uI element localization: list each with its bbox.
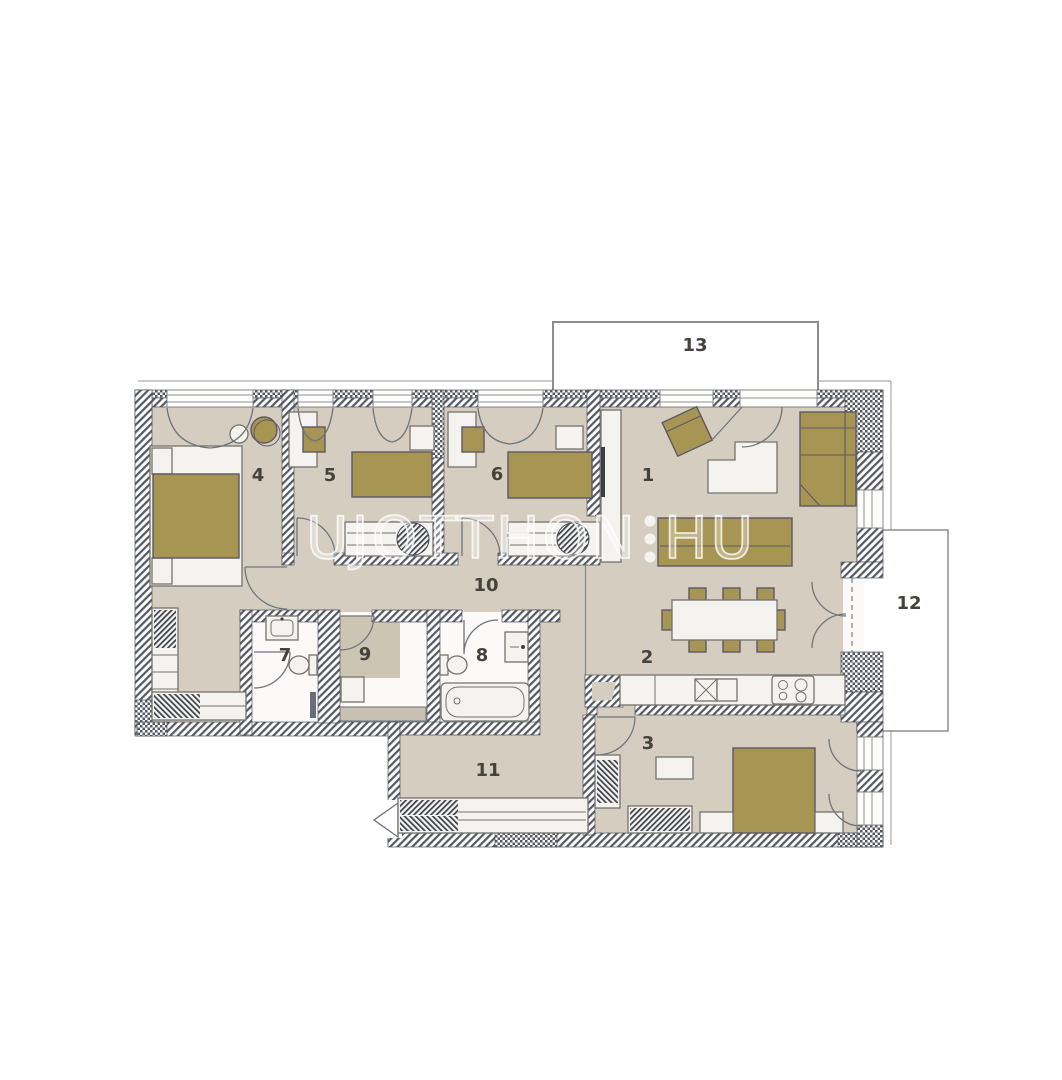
chair bbox=[462, 427, 484, 452]
label-room-4: 4 bbox=[252, 465, 265, 486]
sectional-sofa bbox=[800, 412, 856, 506]
tall-cabinet-inner bbox=[592, 682, 616, 701]
wc-icon bbox=[289, 655, 317, 675]
pillow bbox=[152, 558, 172, 584]
wardrobe-tall bbox=[595, 755, 620, 808]
watermark: UJOTTHON HU bbox=[306, 504, 756, 572]
wardrobe-long bbox=[398, 798, 588, 833]
kitchen-counter bbox=[585, 675, 845, 707]
balcony-13 bbox=[553, 322, 818, 391]
label-room-5: 5 bbox=[324, 465, 337, 486]
room-11-hall bbox=[398, 798, 588, 833]
watermark-text-right: HU bbox=[664, 504, 756, 572]
sink-icon bbox=[505, 632, 528, 662]
nightstand bbox=[815, 812, 843, 833]
window-room5-b bbox=[373, 390, 412, 407]
label-room-6: 6 bbox=[491, 464, 504, 485]
label-room-11: 11 bbox=[475, 760, 500, 781]
label-room-10: 10 bbox=[473, 575, 498, 596]
washing-machine bbox=[341, 677, 364, 702]
single-bed bbox=[508, 452, 592, 498]
label-room-3: 3 bbox=[642, 733, 655, 754]
bathtub-icon bbox=[441, 683, 529, 721]
window-room1 bbox=[660, 390, 713, 407]
watermark-text-left: UJOTTHON bbox=[306, 504, 638, 572]
dining-table bbox=[672, 600, 777, 640]
wardrobe-south bbox=[628, 806, 692, 833]
wall-room7-room9 bbox=[318, 610, 340, 723]
window-room3-a bbox=[857, 737, 883, 770]
chair bbox=[303, 427, 325, 452]
label-room-13: 13 bbox=[682, 335, 707, 356]
label-room-7: 7 bbox=[279, 645, 292, 666]
window-room5-a bbox=[298, 390, 333, 407]
wall-jut bbox=[841, 562, 883, 578]
sink-icon bbox=[266, 616, 298, 640]
nightstand bbox=[700, 812, 733, 833]
wc-icon bbox=[440, 655, 467, 675]
room-9-shelf bbox=[334, 707, 426, 721]
label-room-8: 8 bbox=[476, 645, 489, 666]
wall-room8-east bbox=[528, 610, 540, 723]
floor-plan: 1 2 3 4 5 6 7 8 9 10 11 12 13 UJOTTHON H… bbox=[0, 0, 1062, 1080]
chair-round bbox=[251, 417, 277, 443]
window-room6 bbox=[478, 390, 543, 407]
nightstand bbox=[410, 426, 434, 450]
watermark-dot bbox=[645, 534, 656, 545]
corner-se bbox=[857, 825, 883, 847]
hob-icon bbox=[772, 676, 814, 704]
wardrobe-south bbox=[152, 692, 246, 720]
side-table bbox=[230, 425, 248, 443]
double-bed bbox=[153, 474, 239, 558]
floor-plan-page: 1 2 3 4 5 6 7 8 9 10 11 12 13 UJOTTHON H… bbox=[0, 0, 1062, 1080]
single-bed bbox=[352, 452, 432, 497]
window-room4 bbox=[167, 390, 253, 407]
wall-south-left bbox=[135, 722, 400, 736]
desk bbox=[656, 757, 693, 779]
sink-icon bbox=[695, 679, 737, 701]
window-room1-east bbox=[857, 490, 883, 528]
balcony-13-door-opening bbox=[740, 390, 817, 407]
wall-room11-north bbox=[400, 722, 540, 735]
nightstand bbox=[556, 426, 583, 449]
label-room-2: 2 bbox=[641, 647, 654, 668]
watermark-dot bbox=[645, 516, 656, 527]
pillow bbox=[152, 448, 172, 474]
label-room-9: 9 bbox=[359, 644, 372, 665]
tv bbox=[601, 447, 605, 497]
window-room3-b bbox=[857, 792, 883, 825]
radiator bbox=[310, 692, 316, 718]
double-bed bbox=[733, 748, 815, 833]
watermark-dot bbox=[645, 552, 656, 563]
wall-room9-room8 bbox=[427, 610, 440, 723]
label-room-1: 1 bbox=[642, 465, 655, 486]
label-room-12: 12 bbox=[896, 593, 921, 614]
wall-south bbox=[388, 833, 883, 847]
balcony-12-opening bbox=[843, 578, 864, 652]
